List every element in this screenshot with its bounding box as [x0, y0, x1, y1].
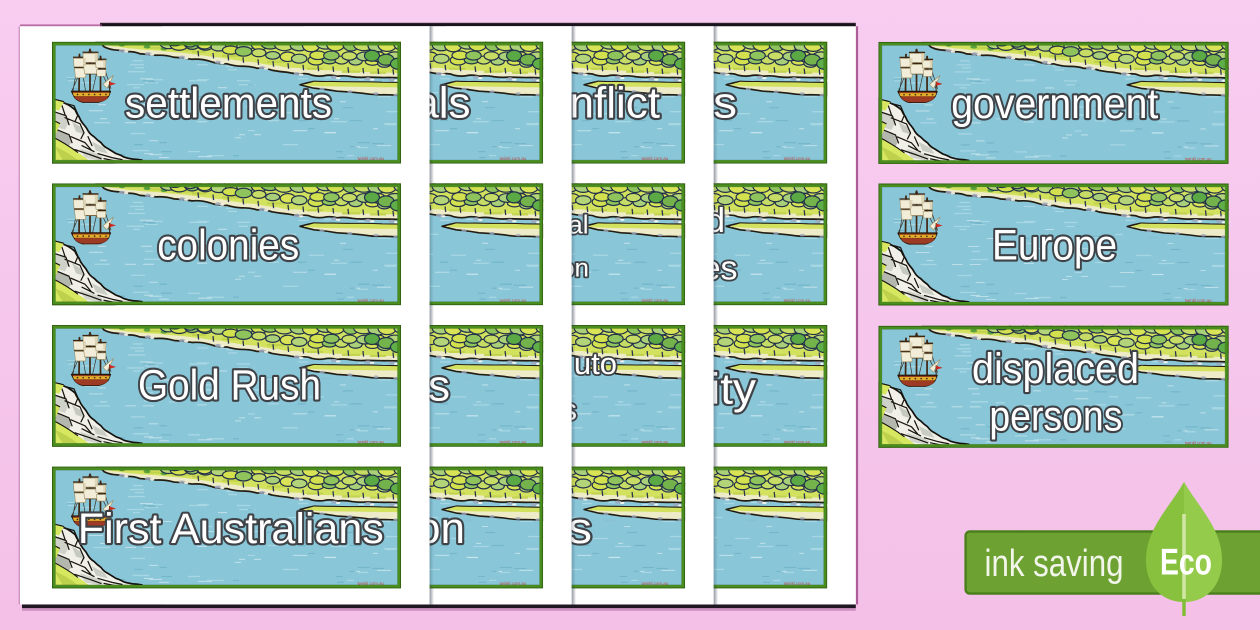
svg-text:colonies: colonies [157, 222, 299, 269]
svg-text:settlements: settlements [125, 80, 332, 127]
svg-text:nflict: nflict [570, 78, 660, 127]
svg-text:persons: persons [989, 394, 1122, 441]
svg-text:Europe: Europe [992, 223, 1117, 270]
svg-text:government: government [951, 81, 1158, 128]
svg-text:ink saving: ink saving [985, 543, 1124, 585]
svg-text:First Australians: First Australians [78, 506, 384, 553]
svg-text:uto: uto [574, 346, 617, 381]
svg-text:Eco: Eco [1160, 542, 1212, 583]
svg-text:Gold Rush: Gold Rush [138, 363, 321, 410]
svg-text:displaced: displaced [972, 346, 1139, 393]
